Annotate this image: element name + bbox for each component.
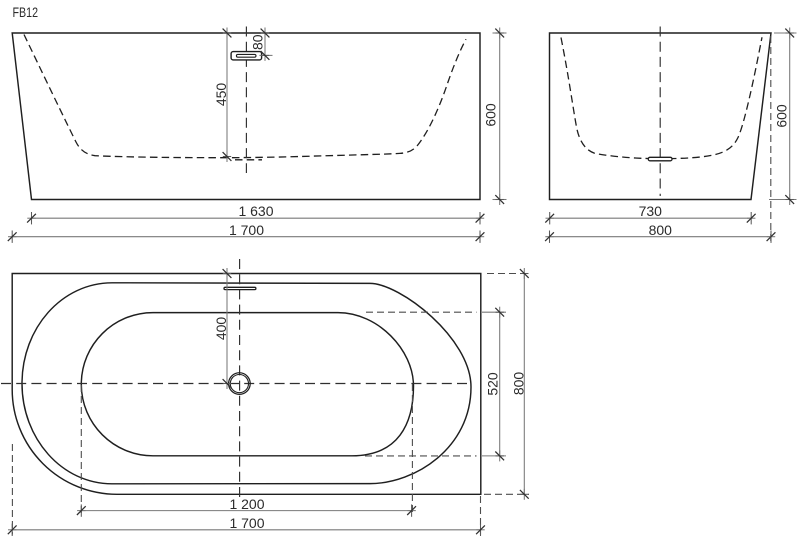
svg-text:1 700: 1 700 <box>229 222 264 238</box>
svg-text:FB12: FB12 <box>13 4 39 20</box>
svg-text:600: 600 <box>483 103 499 127</box>
svg-text:800: 800 <box>649 222 673 238</box>
svg-text:600: 600 <box>774 104 790 128</box>
svg-text:1 200: 1 200 <box>229 496 264 512</box>
svg-text:1 630: 1 630 <box>238 203 273 219</box>
svg-text:1 700: 1 700 <box>229 515 264 531</box>
svg-text:400: 400 <box>213 317 229 341</box>
svg-text:520: 520 <box>485 372 501 396</box>
svg-text:730: 730 <box>639 203 663 219</box>
svg-text:800: 800 <box>511 372 527 396</box>
svg-text:80: 80 <box>250 34 266 50</box>
svg-text:450: 450 <box>213 83 229 107</box>
